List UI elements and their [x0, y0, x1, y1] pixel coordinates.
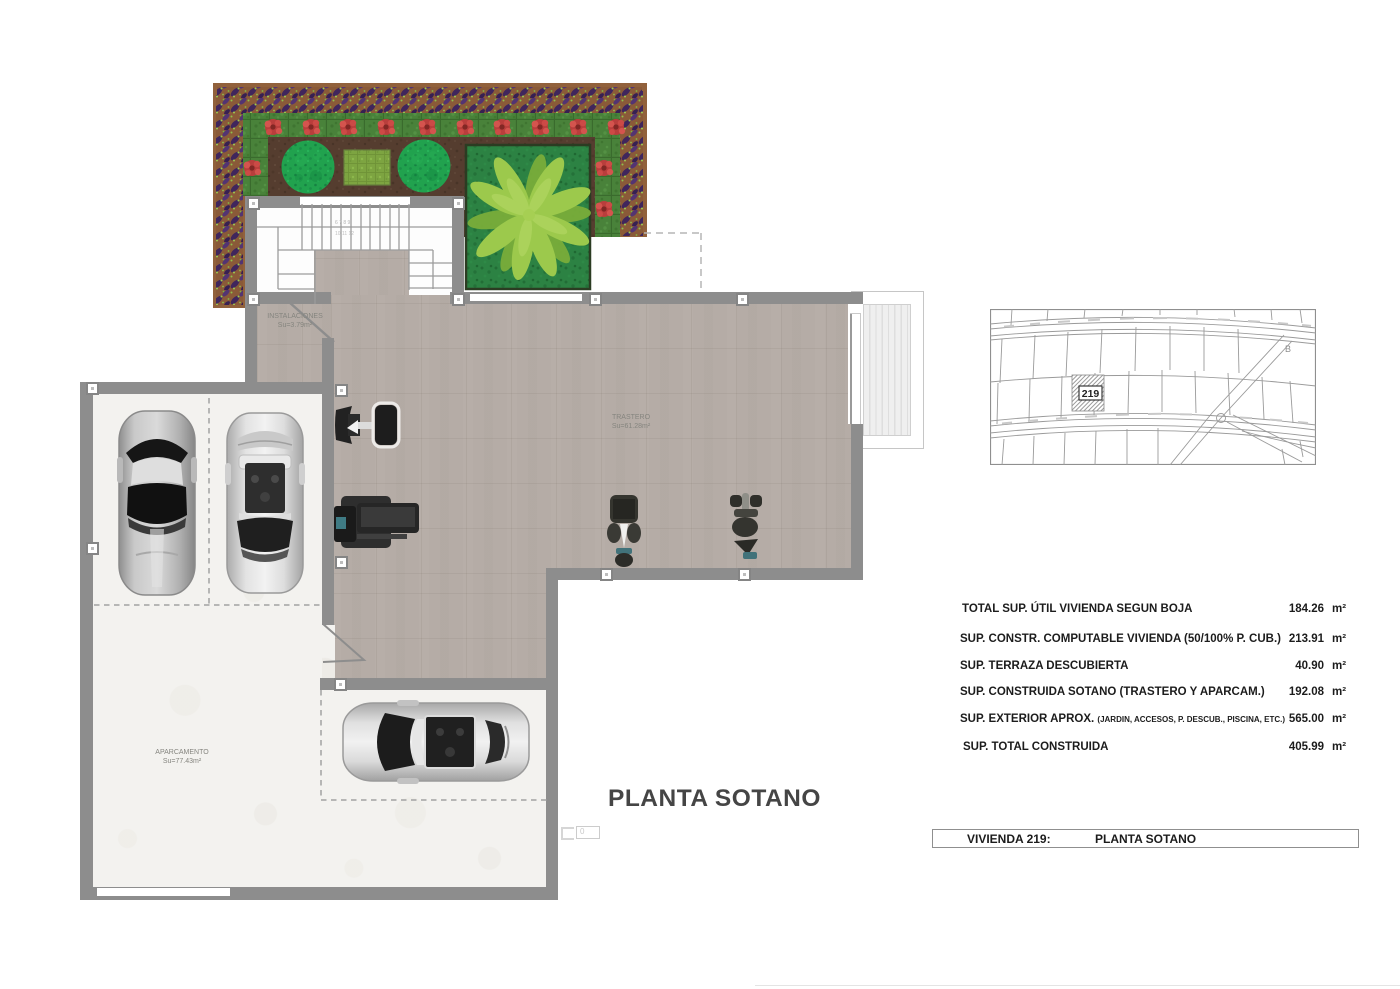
- svg-text:6 7 8 9: 6 7 8 9: [335, 220, 351, 226]
- svg-text:10 11 12: 10 11 12: [335, 231, 354, 237]
- svg-text:B: B: [1285, 344, 1291, 354]
- svg-text:219: 219: [1082, 388, 1100, 400]
